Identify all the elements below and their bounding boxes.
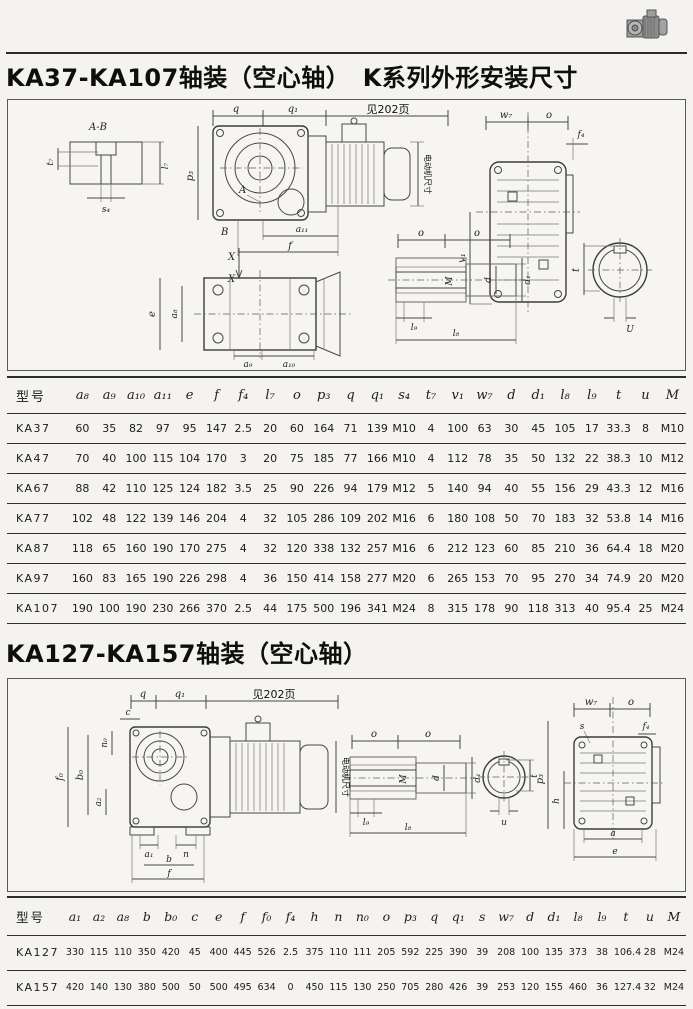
shaft2-dim-o2: o — [425, 729, 431, 740]
table-row-ka47: KA4770401001151041703207518577166M104112… — [7, 443, 686, 473]
value-cell: 190 — [149, 533, 176, 563]
dim2-label-f: f — [166, 869, 172, 879]
table-row-ka67: KA6788421101251241823.5259022694179M1251… — [7, 473, 686, 503]
value-cell: 146 — [176, 503, 203, 533]
column-header: a₁₀ — [123, 377, 150, 413]
column-header: t — [605, 377, 632, 413]
value-cell: 115 — [326, 970, 350, 1005]
value-cell: 38 — [590, 935, 614, 970]
value-cell: 94 — [471, 473, 498, 503]
dim2-label-s: s — [580, 722, 585, 732]
column-header: s — [470, 897, 494, 935]
value-cell: 5 — [418, 473, 445, 503]
value-cell: 257 — [364, 533, 391, 563]
value-cell: 182 — [203, 473, 230, 503]
value-cell: M24 — [662, 935, 686, 970]
value-cell: 110 — [326, 935, 350, 970]
value-cell: 118 — [69, 533, 96, 563]
value-cell: 17 — [578, 413, 605, 443]
dim-label-s4: s₄ — [102, 205, 111, 215]
value-cell: 20 — [257, 443, 284, 473]
value-cell: 100 — [96, 593, 123, 623]
value-cell: M12 — [659, 443, 686, 473]
table-row-ka37: KA3760358297951472.5206016471139M1041006… — [7, 413, 686, 443]
value-cell: M20 — [659, 563, 686, 593]
value-cell: 40 — [96, 443, 123, 473]
column-header: q₁ — [364, 377, 391, 413]
value-cell: 164 — [310, 413, 337, 443]
value-cell: 118 — [525, 593, 552, 623]
value-cell: 178 — [471, 593, 498, 623]
value-cell: 204 — [203, 503, 230, 533]
value-cell: 95 — [176, 413, 203, 443]
column-header: w₇ — [471, 377, 498, 413]
value-cell: 50 — [525, 443, 552, 473]
value-cell: 4 — [230, 563, 257, 593]
column-header: d — [498, 377, 525, 413]
value-cell: 108 — [471, 503, 498, 533]
dim2-label-p3: p₃ — [535, 774, 546, 784]
table-row-ka127: KA127330115110350420454004455262.5375110… — [7, 935, 686, 970]
value-cell: 32 — [638, 970, 662, 1005]
shaft-dim-o1: o — [418, 228, 424, 239]
shaft2-dim-d1: d₁ — [473, 773, 483, 782]
table-row-ka77: KA7710248122139146204432105286109202M166… — [7, 503, 686, 533]
value-cell: 109 — [337, 503, 364, 533]
value-cell: 127.4 — [614, 970, 638, 1005]
value-cell: 120 — [518, 970, 542, 1005]
value-cell: 70 — [525, 503, 552, 533]
value-cell: 250 — [374, 970, 398, 1005]
value-cell: 705 — [398, 970, 422, 1005]
value-cell: 106.4 — [614, 935, 638, 970]
dim2-label-b0: b₀ — [75, 770, 86, 780]
value-cell: 34 — [578, 563, 605, 593]
value-cell: 55 — [525, 473, 552, 503]
column-header: l₉ — [578, 377, 605, 413]
dim2-label-a1: a₁ — [145, 850, 154, 860]
column-header: e — [176, 377, 203, 413]
value-cell: 105 — [284, 503, 311, 533]
column-header: e — [207, 897, 231, 935]
shaft-label-M: M — [445, 276, 455, 287]
value-cell: 3 — [230, 443, 257, 473]
value-cell: 526 — [255, 935, 279, 970]
value-cell: 375 — [303, 935, 327, 970]
shaft-dim-l9: l₉ — [411, 323, 418, 333]
value-cell: 100 — [518, 935, 542, 970]
column-header: t — [614, 897, 638, 935]
end-view-2: w₇ o s f₄ p₃ h — [535, 697, 664, 861]
value-cell: 30 — [498, 413, 525, 443]
value-cell: 77 — [337, 443, 364, 473]
value-cell: 100 — [123, 443, 150, 473]
value-cell: M16 — [391, 533, 418, 563]
value-cell: 265 — [444, 563, 471, 593]
value-cell: 44 — [257, 593, 284, 623]
value-cell: 253 — [494, 970, 518, 1005]
dimension-table-2: 型号a₁a₂a₈bb₀ceff₀f₄hnn₀op₃qq₁sw₇dd₁l₈l₉tu… — [7, 896, 686, 1006]
hollow-shaft-section-2: o o M d d₁ l₉ — [344, 729, 483, 837]
column-header: f₄ — [230, 377, 257, 413]
value-cell: 6 — [418, 533, 445, 563]
value-cell: 65 — [96, 533, 123, 563]
value-cell: 42 — [96, 473, 123, 503]
value-cell: 90 — [498, 593, 525, 623]
value-cell: 370 — [203, 593, 230, 623]
value-cell: M12 — [391, 473, 418, 503]
dim2-label-n0: n₀ — [100, 738, 110, 748]
value-cell: 266 — [176, 593, 203, 623]
header-row: 型号a₁a₂a₈bb₀ceff₀f₄hnn₀op₃qq₁sw₇dd₁l₈l₉tu… — [7, 897, 686, 935]
dim-label-f4: f₄ — [577, 130, 585, 140]
value-cell: 32 — [257, 503, 284, 533]
value-cell: 125 — [149, 473, 176, 503]
value-cell: 130 — [111, 970, 135, 1005]
value-cell: 95.4 — [605, 593, 632, 623]
value-cell: 20 — [257, 413, 284, 443]
column-header: f₀ — [255, 897, 279, 935]
model-cell: KA77 — [7, 503, 69, 533]
value-cell: 0 — [279, 970, 303, 1005]
table-row-ka87: KA8711865160190170275432120338132257M166… — [7, 533, 686, 563]
value-cell: 85 — [525, 533, 552, 563]
column-header: M — [659, 377, 686, 413]
shaft-dim-d1: d₁ — [523, 275, 533, 284]
value-cell: 94 — [337, 473, 364, 503]
dim2-label-q1: q₁ — [175, 689, 185, 700]
section-mark-x1: X — [227, 252, 236, 263]
value-cell: 460 — [566, 970, 590, 1005]
dim-label-a9: a₉ — [244, 360, 253, 368]
value-cell: 64.4 — [605, 533, 632, 563]
value-cell: 156 — [552, 473, 579, 503]
value-cell: 38.3 — [605, 443, 632, 473]
value-cell: 100 — [444, 413, 471, 443]
value-cell: 180 — [444, 503, 471, 533]
value-cell: 420 — [159, 935, 183, 970]
value-cell: M20 — [659, 533, 686, 563]
value-cell: 122 — [123, 503, 150, 533]
value-cell: 202 — [364, 503, 391, 533]
value-cell: 166 — [364, 443, 391, 473]
value-cell: 390 — [446, 935, 470, 970]
value-cell: 102 — [69, 503, 96, 533]
shaft-dim-d: d — [484, 277, 494, 283]
value-cell: 8 — [632, 413, 659, 443]
value-cell: 60 — [498, 533, 525, 563]
circle2-dim-u: u — [501, 818, 507, 828]
value-cell: 592 — [398, 935, 422, 970]
value-cell: 115 — [149, 443, 176, 473]
value-cell: 40 — [578, 593, 605, 623]
dim2-label-f0: f₀ — [55, 773, 66, 782]
dim2-label-a2: a₂ — [94, 797, 104, 806]
value-cell: 495 — [231, 970, 255, 1005]
value-cell: 170 — [203, 443, 230, 473]
model-cell: KA157 — [7, 970, 63, 1005]
column-header: t₇ — [418, 377, 445, 413]
value-cell: 183 — [552, 503, 579, 533]
shaft2-dim-l8: l₈ — [405, 823, 412, 833]
dim2-label-o: o — [628, 697, 634, 708]
value-cell: 330 — [63, 935, 87, 970]
section-mark-x2: X — [227, 274, 236, 285]
dim-label-f: f — [287, 241, 294, 252]
column-header: a₁₁ — [149, 377, 176, 413]
section-detail-ab: A-B t₇ l₇ s₄ — [46, 122, 171, 215]
value-cell: 275 — [203, 533, 230, 563]
column-header: v₁ — [444, 377, 471, 413]
column-header: b₀ — [159, 897, 183, 935]
value-cell: 25 — [632, 593, 659, 623]
value-cell: 4 — [418, 413, 445, 443]
value-cell: 196 — [337, 593, 364, 623]
value-cell: 104 — [176, 443, 203, 473]
value-cell: 32 — [257, 533, 284, 563]
dim-label-w7: w₇ — [500, 110, 513, 121]
shaft2-dim-o1: o — [371, 729, 377, 740]
shaft2-label-M: M — [399, 774, 409, 785]
dim-label-q: q — [233, 104, 239, 115]
side-view: q q₁ 见202页 p₃ — [185, 103, 448, 278]
dimension-table: 型号a₈a₉a₁₀a₁₁eff₄l₇op₃qq₁s₄t₇v₁w₇dd₁l₈l₉t… — [7, 376, 686, 624]
value-cell: M24 — [391, 593, 418, 623]
value-cell: 88 — [69, 473, 96, 503]
value-cell: 350 — [135, 935, 159, 970]
value-cell: 45 — [525, 413, 552, 443]
value-cell: M16 — [659, 473, 686, 503]
value-cell: 226 — [176, 563, 203, 593]
value-cell: 170 — [176, 533, 203, 563]
value-cell: 70 — [498, 563, 525, 593]
value-cell: 298 — [203, 563, 230, 593]
value-cell: 160 — [123, 533, 150, 563]
dim2-label-f4: f₄ — [642, 722, 650, 732]
table-row-ka157: KA15742014013038050050500495634045011513… — [7, 970, 686, 1005]
value-cell: 270 — [552, 563, 579, 593]
page-title: KA37-KA107轴装（空心轴） K系列外形安装尺寸 — [6, 58, 578, 93]
value-cell: 140 — [87, 970, 111, 1005]
column-header: u — [638, 897, 662, 935]
value-cell: 43.3 — [605, 473, 632, 503]
value-cell: 426 — [446, 970, 470, 1005]
value-cell: 445 — [231, 935, 255, 970]
model-cell: KA107 — [7, 593, 69, 623]
value-cell: 175 — [284, 593, 311, 623]
label-A: A — [238, 185, 246, 196]
column-header: l₈ — [566, 897, 590, 935]
value-cell: 400 — [207, 935, 231, 970]
value-cell: 373 — [566, 935, 590, 970]
value-cell: 150 — [284, 563, 311, 593]
model-cell: KA37 — [7, 413, 69, 443]
value-cell: M16 — [659, 503, 686, 533]
value-cell: 380 — [135, 970, 159, 1005]
value-cell: 83 — [96, 563, 123, 593]
value-cell: 78 — [471, 443, 498, 473]
value-cell: M24 — [662, 970, 686, 1005]
value-cell: M20 — [391, 563, 418, 593]
value-cell: M16 — [391, 503, 418, 533]
value-cell: 315 — [444, 593, 471, 623]
diagram-box-1: A-B t₇ l₇ s₄ — [7, 99, 686, 371]
value-cell: 4 — [418, 443, 445, 473]
shaft2-dim-l9: l₉ — [363, 818, 370, 828]
value-cell: 18 — [632, 533, 659, 563]
shaft-end-view: t U — [571, 238, 652, 335]
value-cell: 140 — [444, 473, 471, 503]
column-header: p₃ — [310, 377, 337, 413]
value-cell: 36 — [578, 533, 605, 563]
column-header: c — [183, 897, 207, 935]
value-cell: 225 — [422, 935, 446, 970]
circle-dim-t: t — [571, 267, 582, 272]
dimension-table-1: 型号a₈a₉a₁₀a₁₁eff₄l₇op₃qq₁s₄t₇v₁w₇dd₁l₈l₉t… — [7, 376, 686, 624]
value-cell: 75 — [284, 443, 311, 473]
value-cell: 132 — [552, 443, 579, 473]
dim2-label-h: h — [552, 798, 562, 804]
diagram-box-2: q q₁ 见202页 c n₀ f₀ b₀ a₂ — [7, 678, 686, 892]
value-cell: 14 — [632, 503, 659, 533]
value-cell: 500 — [310, 593, 337, 623]
column-header: n₀ — [350, 897, 374, 935]
shaft-end-view-2: t u — [478, 751, 540, 828]
column-header: b — [135, 897, 159, 935]
column-header: s₄ — [391, 377, 418, 413]
top-rule — [6, 52, 687, 54]
value-cell: 2.5 — [230, 593, 257, 623]
value-cell: 25 — [257, 473, 284, 503]
value-cell: 3.5 — [230, 473, 257, 503]
value-cell: 124 — [176, 473, 203, 503]
value-cell: 110 — [111, 935, 135, 970]
value-cell: 160 — [69, 563, 96, 593]
value-cell: 82 — [123, 413, 150, 443]
model-cell: KA87 — [7, 533, 69, 563]
value-cell: 60 — [69, 413, 96, 443]
dim-label-t7: t₇ — [46, 158, 56, 166]
column-header: l₇ — [257, 377, 284, 413]
value-cell: 158 — [337, 563, 364, 593]
value-cell: 110 — [123, 473, 150, 503]
dim2-label-a: a — [610, 829, 615, 839]
column-header: f — [231, 897, 255, 935]
value-cell: 105 — [552, 413, 579, 443]
value-cell: 634 — [255, 970, 279, 1005]
value-cell: 139 — [149, 503, 176, 533]
value-cell: 139 — [364, 413, 391, 443]
value-cell: 500 — [207, 970, 231, 1005]
value-cell: 12 — [632, 473, 659, 503]
value-cell: 40 — [498, 473, 525, 503]
value-cell: 420 — [63, 970, 87, 1005]
value-cell: 338 — [310, 533, 337, 563]
value-cell: M10 — [659, 413, 686, 443]
value-cell: 97 — [149, 413, 176, 443]
column-header: d₁ — [525, 377, 552, 413]
value-cell: 208 — [494, 935, 518, 970]
value-cell: 205 — [374, 935, 398, 970]
dim2-label-w7: w₇ — [585, 697, 598, 708]
value-cell: 500 — [159, 970, 183, 1005]
value-cell: 280 — [422, 970, 446, 1005]
value-cell: 22 — [578, 443, 605, 473]
column-header: f₄ — [279, 897, 303, 935]
see-page-note-2: 见202页 — [253, 688, 296, 701]
value-cell: M10 — [391, 413, 418, 443]
dim2-label-e: e — [612, 847, 617, 857]
value-cell: 29 — [578, 473, 605, 503]
value-cell: 414 — [310, 563, 337, 593]
value-cell: 226 — [310, 473, 337, 503]
value-cell: 71 — [337, 413, 364, 443]
value-cell: 32 — [578, 503, 605, 533]
value-cell: 313 — [552, 593, 579, 623]
value-cell: 50 — [498, 503, 525, 533]
model-cell: KA47 — [7, 443, 69, 473]
column-header: M — [662, 897, 686, 935]
catalog-page: KA37-KA107轴装（空心轴） K系列外形安装尺寸 A-B t₇ — [0, 0, 693, 1009]
dim-label-p3: p₃ — [185, 171, 196, 181]
value-cell: 190 — [69, 593, 96, 623]
value-cell: 74.9 — [605, 563, 632, 593]
column-header: n — [326, 897, 350, 935]
table-row-ka107: KA1071901001902302663702.544175500196341… — [7, 593, 686, 623]
value-cell: 115 — [87, 935, 111, 970]
value-cell: M10 — [391, 443, 418, 473]
dim2-label-c: c — [125, 708, 130, 718]
value-cell: 155 — [542, 970, 566, 1005]
column-header: p₃ — [398, 897, 422, 935]
value-cell: 165 — [123, 563, 150, 593]
section-title: KA127-KA157轴装（空心轴） — [6, 634, 368, 669]
column-header: u — [632, 377, 659, 413]
see-page-note: 见202页 — [367, 103, 410, 116]
value-cell: 147 — [203, 413, 230, 443]
value-cell: 63 — [471, 413, 498, 443]
shaft-dim-o2: o — [474, 228, 480, 239]
value-cell: 36 — [257, 563, 284, 593]
dim2-label-q: q — [140, 689, 146, 700]
dim-label-a10: a₁₀ — [283, 360, 296, 368]
value-cell: 35 — [498, 443, 525, 473]
column-header: q — [422, 897, 446, 935]
value-cell: 210 — [552, 533, 579, 563]
column-header: a₈ — [111, 897, 135, 935]
column-header: o — [374, 897, 398, 935]
column-header: o — [284, 377, 311, 413]
dim-label-e: e — [147, 311, 158, 317]
value-cell: 341 — [364, 593, 391, 623]
value-cell: 450 — [303, 970, 327, 1005]
bottom-view: X e a₈ a₉ a₁₀ — [147, 270, 352, 368]
value-cell: 50 — [183, 970, 207, 1005]
dimension-table: 型号a₁a₂a₈bb₀ceff₀f₄hnn₀op₃qq₁sw₇dd₁l₈l₉tu… — [7, 896, 686, 1006]
value-cell: 112 — [444, 443, 471, 473]
value-cell: 212 — [444, 533, 471, 563]
column-header: a₂ — [87, 897, 111, 935]
shaft2-dim-d: d — [432, 775, 442, 781]
model-cell: KA97 — [7, 563, 69, 593]
dim-label-l7: l₇ — [161, 162, 171, 169]
column-header: l₈ — [552, 377, 579, 413]
value-cell: 153 — [471, 563, 498, 593]
value-cell: 190 — [149, 563, 176, 593]
value-cell: 135 — [542, 935, 566, 970]
column-header: a₁ — [63, 897, 87, 935]
dim2-label-b: b — [166, 855, 172, 865]
